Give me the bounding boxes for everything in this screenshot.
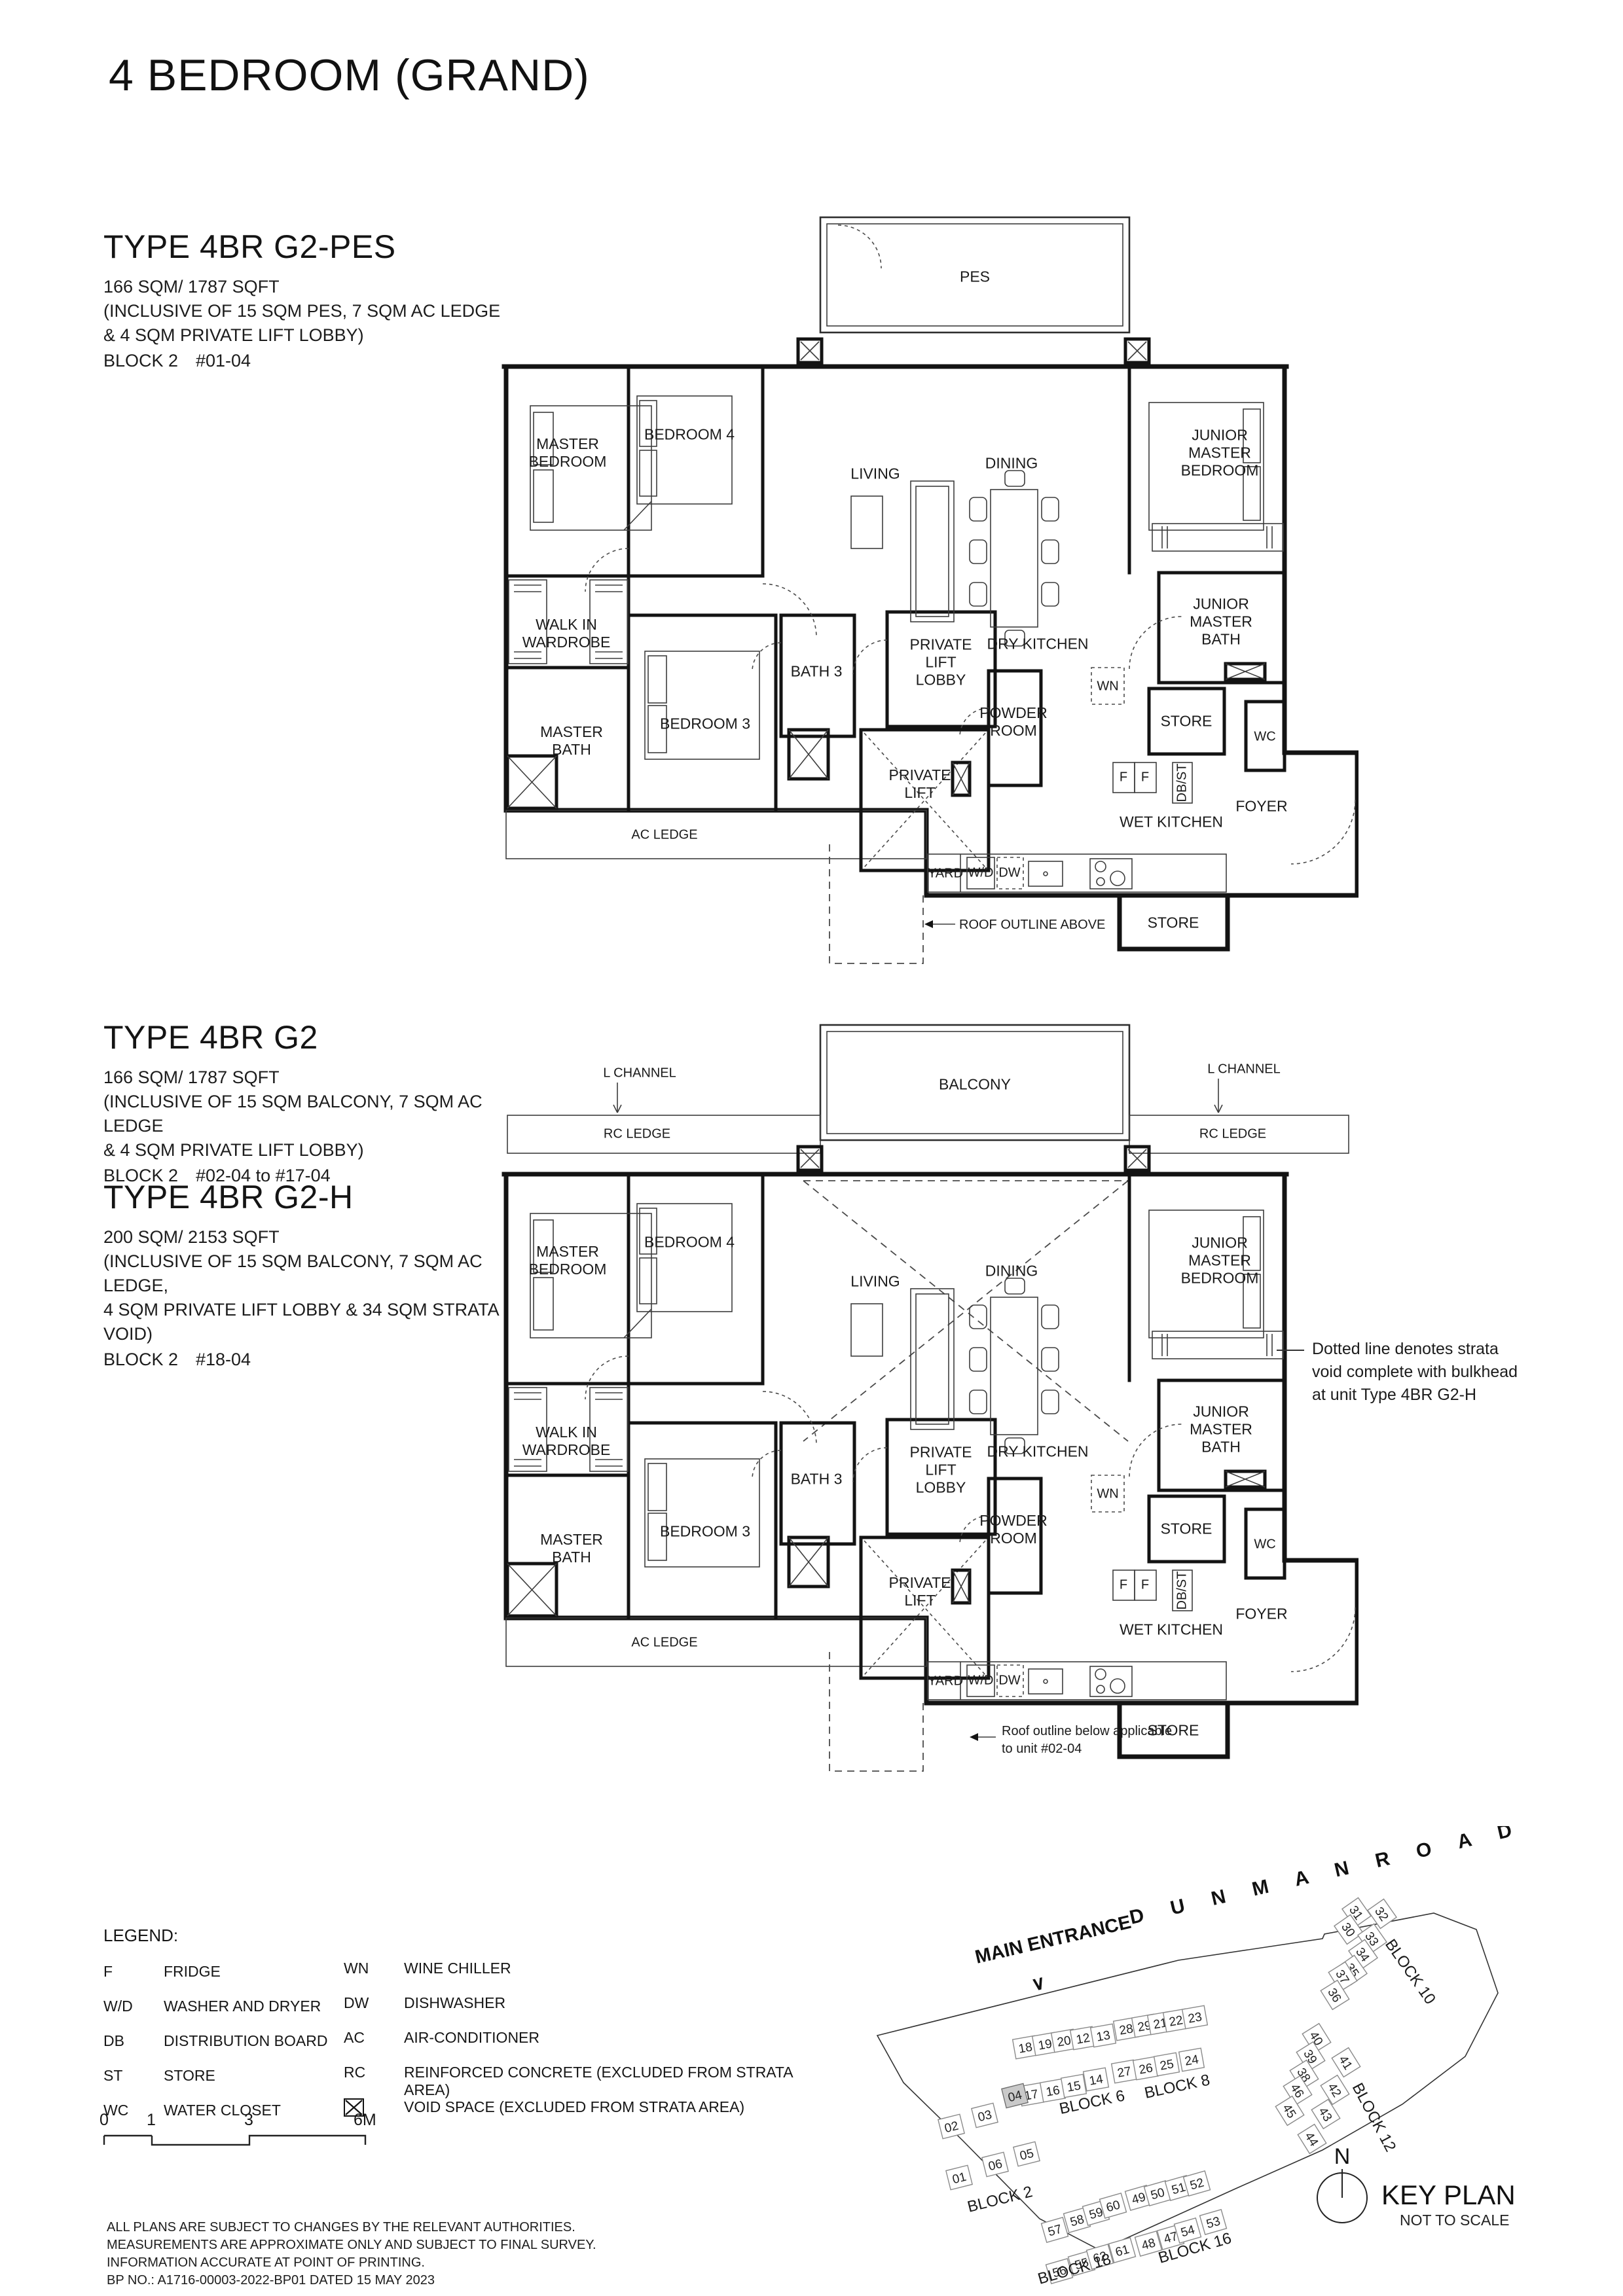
plan1-detail-2: (INCLUSIVE OF 15 SQM PES, 7 SQM AC LEDGE [103, 299, 522, 323]
svg-text:16: 16 [1045, 2083, 1061, 2099]
plan2h-heading: TYPE 4BR G2-H [103, 1178, 522, 1216]
room-label-wc: WC [1254, 728, 1275, 746]
key-plan-drawing: D U N M A N R O A D MAIN ENTRANCE ∨ 1819… [864, 1826, 1545, 2294]
room-label-private-lift-lobby-2: PRIVATE LIFT LOBBY [910, 1444, 972, 1497]
plan2h-block: BLOCK 2 [103, 1346, 196, 1372]
room-label-store: STORE [1161, 713, 1213, 730]
svg-text:18: 18 [1017, 2040, 1033, 2056]
scale-tick-3: 3 [244, 2111, 253, 2130]
room-label-wn-2: WN [1097, 1486, 1118, 1503]
room-label-master-bedroom-2: MASTER BEDROOM [529, 1243, 607, 1278]
room-label-foyer-2: FOYER [1235, 1605, 1287, 1623]
label-rc-ledge-left: RC LEDGE [604, 1126, 670, 1143]
room-label-walk-in-wardrobe-2: WALK IN WARDROBE [522, 1424, 611, 1459]
keyplan-unit: 32 [1368, 1899, 1396, 1928]
plan2h-units: #18-04 [196, 1350, 251, 1369]
svg-text:27: 27 [1116, 2064, 1132, 2080]
room-label-wd: W/D [968, 865, 994, 882]
room-label-fridge-2: F [1141, 769, 1149, 787]
room-label-dry-kitchen-2: DRY KITCHEN [987, 1443, 1088, 1461]
room-label-dbst: DB/ST [1174, 764, 1192, 802]
keyplan-unit: 06 [982, 2152, 1008, 2176]
plan2-detail-3: & 4 SQM PRIVATE LIFT LOBBY) [103, 1138, 522, 1162]
plan1-detail-3: & 4 SQM PRIVATE LIFT LOBBY) [103, 323, 522, 348]
key-plan: D U N M A N R O A D MAIN ENTRANCE ∨ 1819… [864, 1826, 1545, 2294]
svg-text:26: 26 [1138, 2061, 1154, 2077]
plan1-units: #01-04 [196, 351, 251, 370]
room-label-balcony: BALCONY [939, 1076, 1011, 1094]
disclaimer-line-1: ALL PLANS ARE SUBJECT TO CHANGES BY THE … [107, 2219, 596, 2236]
plan1-drawing [468, 209, 1359, 978]
plan2: BALCONY L CHANNEL L CHANNEL RC LEDGE RC … [468, 1017, 1359, 1809]
keyplan-unit: 60 [1100, 2193, 1127, 2218]
room-label-junior-master-bath-2: JUNIOR MASTER BATH [1190, 1403, 1252, 1456]
room-label-pes: PES [960, 268, 990, 286]
room-label-ac-ledge: AC LEDGE [631, 827, 697, 844]
room-label-junior-master-bath: JUNIOR MASTER BATH [1190, 596, 1252, 649]
plan1-detail-1: 166 SQM/ 1787 SQFT [103, 275, 522, 299]
room-label-junior-master-bedroom: JUNIOR MASTER BEDROOM [1181, 427, 1259, 480]
plan1-heading: TYPE 4BR G2-PES [103, 228, 522, 266]
compass-n-label: N [1334, 2144, 1351, 2169]
key-plan-subtitle: NOT TO SCALE [1400, 2212, 1509, 2229]
room-label-store-2: STORE [1161, 1520, 1213, 1538]
keyplan-unit: 61 [1109, 2238, 1136, 2263]
keyplan-block-label: BLOCK 10 [1381, 1936, 1439, 2007]
scale-tick-0: 0 [100, 2111, 109, 2130]
room-label-fridge-1: F [1120, 769, 1127, 787]
plan2h-detail-2: (INCLUSIVE OF 15 SQM BALCONY, 7 SQM AC L… [103, 1249, 522, 1298]
scale-tick-1: 1 [147, 2111, 156, 2130]
keyplan-unit: 43 [1311, 2100, 1340, 2129]
svg-text:14: 14 [1088, 2072, 1104, 2088]
keyplan-unit: 25 [1154, 2053, 1180, 2075]
scale-bar: 0 1 3 6M [98, 2111, 406, 2157]
room-label-bedroom3: BEDROOM 3 [660, 715, 750, 733]
keyplan-unit: 41 [1332, 2048, 1360, 2077]
label-l-channel-left: L CHANNEL [603, 1065, 676, 1083]
keyplan-unit: 23 [1182, 2005, 1208, 2028]
label-rc-ledge-right: RC LEDGE [1199, 1126, 1266, 1143]
plan2h-block-line: BLOCK 2#18-04 [103, 1346, 522, 1372]
legend-row: FFRIDGE [103, 1963, 327, 1998]
svg-text:23: 23 [1187, 2010, 1203, 2026]
legend-row: WNWINE CHILLER [344, 1960, 841, 1994]
plan2h-detail-3: 4 SQM PRIVATE LIFT LOBBY & 34 SQM STRATA… [103, 1298, 522, 1346]
legend-row: RCREINFORCED CONCRETE (EXCLUDED FROM STR… [344, 2064, 841, 2098]
room-label-dbst-2: DB/ST [1174, 1571, 1192, 1610]
room-label-bedroom4: BEDROOM 4 [644, 426, 735, 444]
road-label: D U N M A N R O A D [1127, 1826, 1525, 1929]
plan2-detail-2: (INCLUSIVE OF 15 SQM BALCONY, 7 SQM AC L… [103, 1090, 522, 1138]
keyplan-unit: 24 [1179, 2048, 1205, 2071]
room-label-wet-kitchen-2: WET KITCHEN [1120, 1621, 1223, 1639]
keyplan-unit: 05 [1013, 2142, 1040, 2166]
key-plan-title: KEY PLAN [1381, 2179, 1516, 2210]
floorplan-page: 4 BEDROOM (GRAND) TYPE 4BR G2-PES 166 SQ… [0, 0, 1623, 2296]
plan1: PES MASTER BEDROOM BEDROOM 4 LIVING DINI… [468, 209, 1359, 978]
svg-text:24: 24 [1184, 2053, 1200, 2068]
room-label-dining-2: DINING [985, 1263, 1038, 1280]
plan1-block-line: BLOCK 2#01-04 [103, 348, 522, 374]
keyplan-unit: 02 [938, 2114, 964, 2138]
svg-text:25: 25 [1159, 2057, 1175, 2073]
room-label-store-bottom: STORE [1148, 914, 1199, 932]
legend-row: STSTORE [103, 2067, 327, 2102]
room-label-powder-room-2: POWDER ROOM [979, 1512, 1048, 1547]
page-title: 4 BEDROOM (GRAND) [109, 50, 590, 101]
room-label-dw-2: DW [998, 1672, 1020, 1690]
strata-note-leader [1277, 1350, 1304, 1351]
legend-title: LEGEND: [103, 1926, 327, 1946]
keyplan-unit: 42 [1321, 2075, 1349, 2105]
disclaimer-line-2: MEASUREMENTS ARE APPROXIMATE ONLY AND SU… [107, 2236, 596, 2254]
legend-col2: WNWINE CHILLER DWDISHWASHER ACAIR-CONDIT… [344, 1960, 841, 2133]
disclaimer-line-4: BP NO.: A1716-00003-2022-BP01 DATED 15 M… [107, 2272, 596, 2289]
svg-text:12: 12 [1075, 2031, 1091, 2047]
scale-tick-6m: 6M [354, 2111, 376, 2130]
disclaimer: ALL PLANS ARE SUBJECT TO CHANGES BY THE … [107, 2219, 596, 2289]
room-label-master-bath: MASTER BATH [540, 723, 603, 759]
room-label-wn: WN [1097, 678, 1118, 696]
keyplan-unit: 01 [946, 2165, 972, 2189]
main-entrance-arrow: ∨ [1029, 1972, 1048, 1996]
room-label-private-lift-2: PRIVATE LIFT [889, 1574, 951, 1609]
plan1-block: BLOCK 2 [103, 348, 196, 374]
svg-text:20: 20 [1056, 2034, 1072, 2049]
legend: LEGEND: FFRIDGE W/DWASHER AND DRYER DBDI… [103, 1926, 327, 2136]
roof-outline-note-2: Roof outline below applicable to unit #0… [1002, 1723, 1172, 1758]
keyplan-unit: 03 [972, 2103, 998, 2127]
keyplan-unit: 14 [1084, 2068, 1109, 2090]
keyplan-unit: 27 [1112, 2060, 1137, 2083]
room-label-master-bedroom: MASTER BEDROOM [529, 435, 607, 471]
roof-outline-note: ROOF OUTLINE ABOVE [959, 916, 1105, 934]
plan2h-detail-1: 200 SQM/ 2153 SQFT [103, 1225, 522, 1249]
room-label-bedroom3-2: BEDROOM 3 [660, 1523, 750, 1541]
room-label-dry-kitchen: DRY KITCHEN [987, 636, 1088, 653]
keyplan-unit: 52 [1184, 2171, 1211, 2196]
svg-text:19: 19 [1037, 2037, 1053, 2053]
room-label-dining: DINING [985, 455, 1038, 473]
room-label-ac-ledge-2: AC LEDGE [631, 1634, 697, 1652]
room-label-foyer: FOYER [1235, 798, 1287, 816]
legend-row: W/DWASHER AND DRYER [103, 1998, 327, 2032]
plan2-detail-1: 166 SQM/ 1787 SQFT [103, 1066, 522, 1090]
svg-text:28: 28 [1118, 2022, 1134, 2037]
keyplan-block-label: BLOCK 2 [966, 2183, 1034, 2216]
plan2-heading: TYPE 4BR G2 [103, 1018, 522, 1056]
room-label-fridge-1-2: F [1120, 1577, 1127, 1594]
main-entrance-label: MAIN ENTRANCE [973, 1912, 1133, 1968]
svg-text:15: 15 [1066, 2079, 1082, 2094]
room-label-dw: DW [998, 865, 1020, 882]
room-label-walk-in-wardrobe: WALK IN WARDROBE [522, 616, 611, 651]
legend-row: ACAIR-CONDITIONER [344, 2029, 841, 2064]
strata-void-note: Dotted line denotes strata void complete… [1312, 1338, 1548, 1407]
room-label-yard: YARD [928, 865, 963, 883]
svg-text:22: 22 [1168, 2013, 1184, 2029]
room-label-master-bath-2: MASTER BATH [540, 1531, 603, 1566]
room-label-private-lift: PRIVATE LIFT [889, 766, 951, 802]
disclaimer-line-3: INFORMATION ACCURATE AT POINT OF PRINTIN… [107, 2254, 596, 2272]
legend-row: DBDISTRIBUTION BOARD [103, 2032, 327, 2067]
room-label-yard-2: YARD [928, 1673, 963, 1691]
room-label-wet-kitchen: WET KITCHEN [1120, 814, 1223, 831]
room-label-living: LIVING [850, 465, 900, 483]
room-label-bath3-2: BATH 3 [791, 1471, 843, 1488]
keyplan-block-label: BLOCK 12 [1349, 2080, 1400, 2155]
room-label-wc-2: WC [1254, 1536, 1275, 1554]
plan2-info-g2h: TYPE 4BR G2-H 200 SQM/ 2153 SQFT (INCLUS… [103, 1178, 522, 1372]
room-label-living-2: LIVING [850, 1273, 900, 1291]
plan1-info: TYPE 4BR G2-PES 166 SQM/ 1787 SQFT (INCL… [103, 228, 522, 374]
room-label-bath3: BATH 3 [791, 663, 843, 681]
keyplan-unit: 15 [1061, 2074, 1087, 2097]
room-label-fridge-2-2: F [1141, 1577, 1149, 1594]
room-label-junior-master-bedroom-2: JUNIOR MASTER BEDROOM [1181, 1234, 1259, 1287]
room-label-private-lift-lobby: PRIVATE LIFT LOBBY [910, 636, 972, 689]
room-label-bedroom4-2: BEDROOM 4 [644, 1234, 735, 1251]
room-label-powder-room: POWDER ROOM [979, 704, 1048, 740]
plan2-info-g2: TYPE 4BR G2 166 SQM/ 1787 SQFT (INCLUSIV… [103, 1018, 522, 1189]
room-label-wd-2: W/D [968, 1672, 994, 1690]
legend-row-void: VOID SPACE (EXCLUDED FROM STRATA AREA) [344, 2098, 841, 2133]
label-l-channel-right: L CHANNEL [1207, 1061, 1281, 1079]
keyplan-unit: 44 [1298, 2125, 1326, 2154]
svg-text:13: 13 [1095, 2028, 1111, 2044]
keyplan-unit: 13 [1091, 2024, 1116, 2047]
legend-row: DWDISHWASHER [344, 1994, 841, 2029]
